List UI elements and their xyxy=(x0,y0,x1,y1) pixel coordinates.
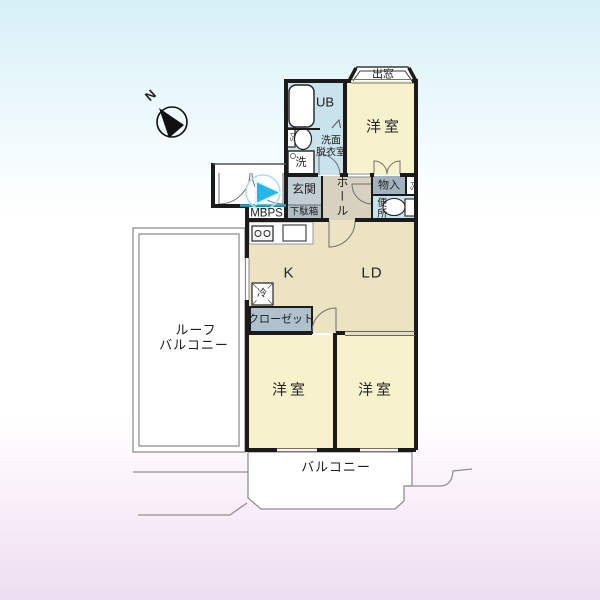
floor-plan-drawing xyxy=(0,0,600,600)
compass-icon xyxy=(157,107,187,138)
entrance-approach-area xyxy=(213,164,286,207)
hall-label: ホール xyxy=(334,176,348,218)
roof-balcony-label-line1: ルーフ xyxy=(175,324,216,339)
refrigerator-label: 冷 xyxy=(256,288,268,300)
kitchen-sink-icon xyxy=(283,225,306,241)
closet-label: クローゼット xyxy=(248,314,314,327)
toilet-label: 便所 xyxy=(374,197,386,219)
balcony-label: バルコニー xyxy=(301,461,371,476)
side-line-left-2 xyxy=(138,503,247,515)
toilet-bowl-icon xyxy=(383,199,405,216)
kitchen-label: K xyxy=(283,264,294,281)
shoe-cabinet-label: 下駄箱 xyxy=(290,207,319,218)
pipe-space-left-label: PS xyxy=(287,133,294,141)
washbasin-icon xyxy=(295,129,312,150)
storage-label: 物入 xyxy=(378,179,400,192)
living-dining-label: LD xyxy=(361,264,382,281)
entrance-label: 玄関 xyxy=(292,183,316,197)
meter-box-label: MBPS xyxy=(250,207,283,220)
washing-machine-label: 洗 xyxy=(296,157,307,170)
roof-balcony-label-line2: バルコニー xyxy=(159,339,229,354)
side-line-right xyxy=(404,469,472,486)
bay-window-label: 出窓 xyxy=(372,69,394,82)
bedroom-top-label: 洋室 xyxy=(366,118,402,135)
pipe-space-right-label: PS xyxy=(408,181,415,189)
washroom-label-line2: 脱衣室 xyxy=(316,147,346,159)
washroom-label-line1: 洗面 xyxy=(321,135,341,147)
bedroom-bottom-left-label: 洋室 xyxy=(272,381,308,398)
unit-bath-label: UB xyxy=(316,96,334,111)
floor-plan: N 出窓 UB 洋室 洗面 脱衣室 洗 PS 玄関 下駄箱 ホール 物入 PS … xyxy=(0,0,600,600)
bathtub-icon xyxy=(289,85,314,127)
bedroom-bottom-right-label: 洋室 xyxy=(358,381,394,398)
